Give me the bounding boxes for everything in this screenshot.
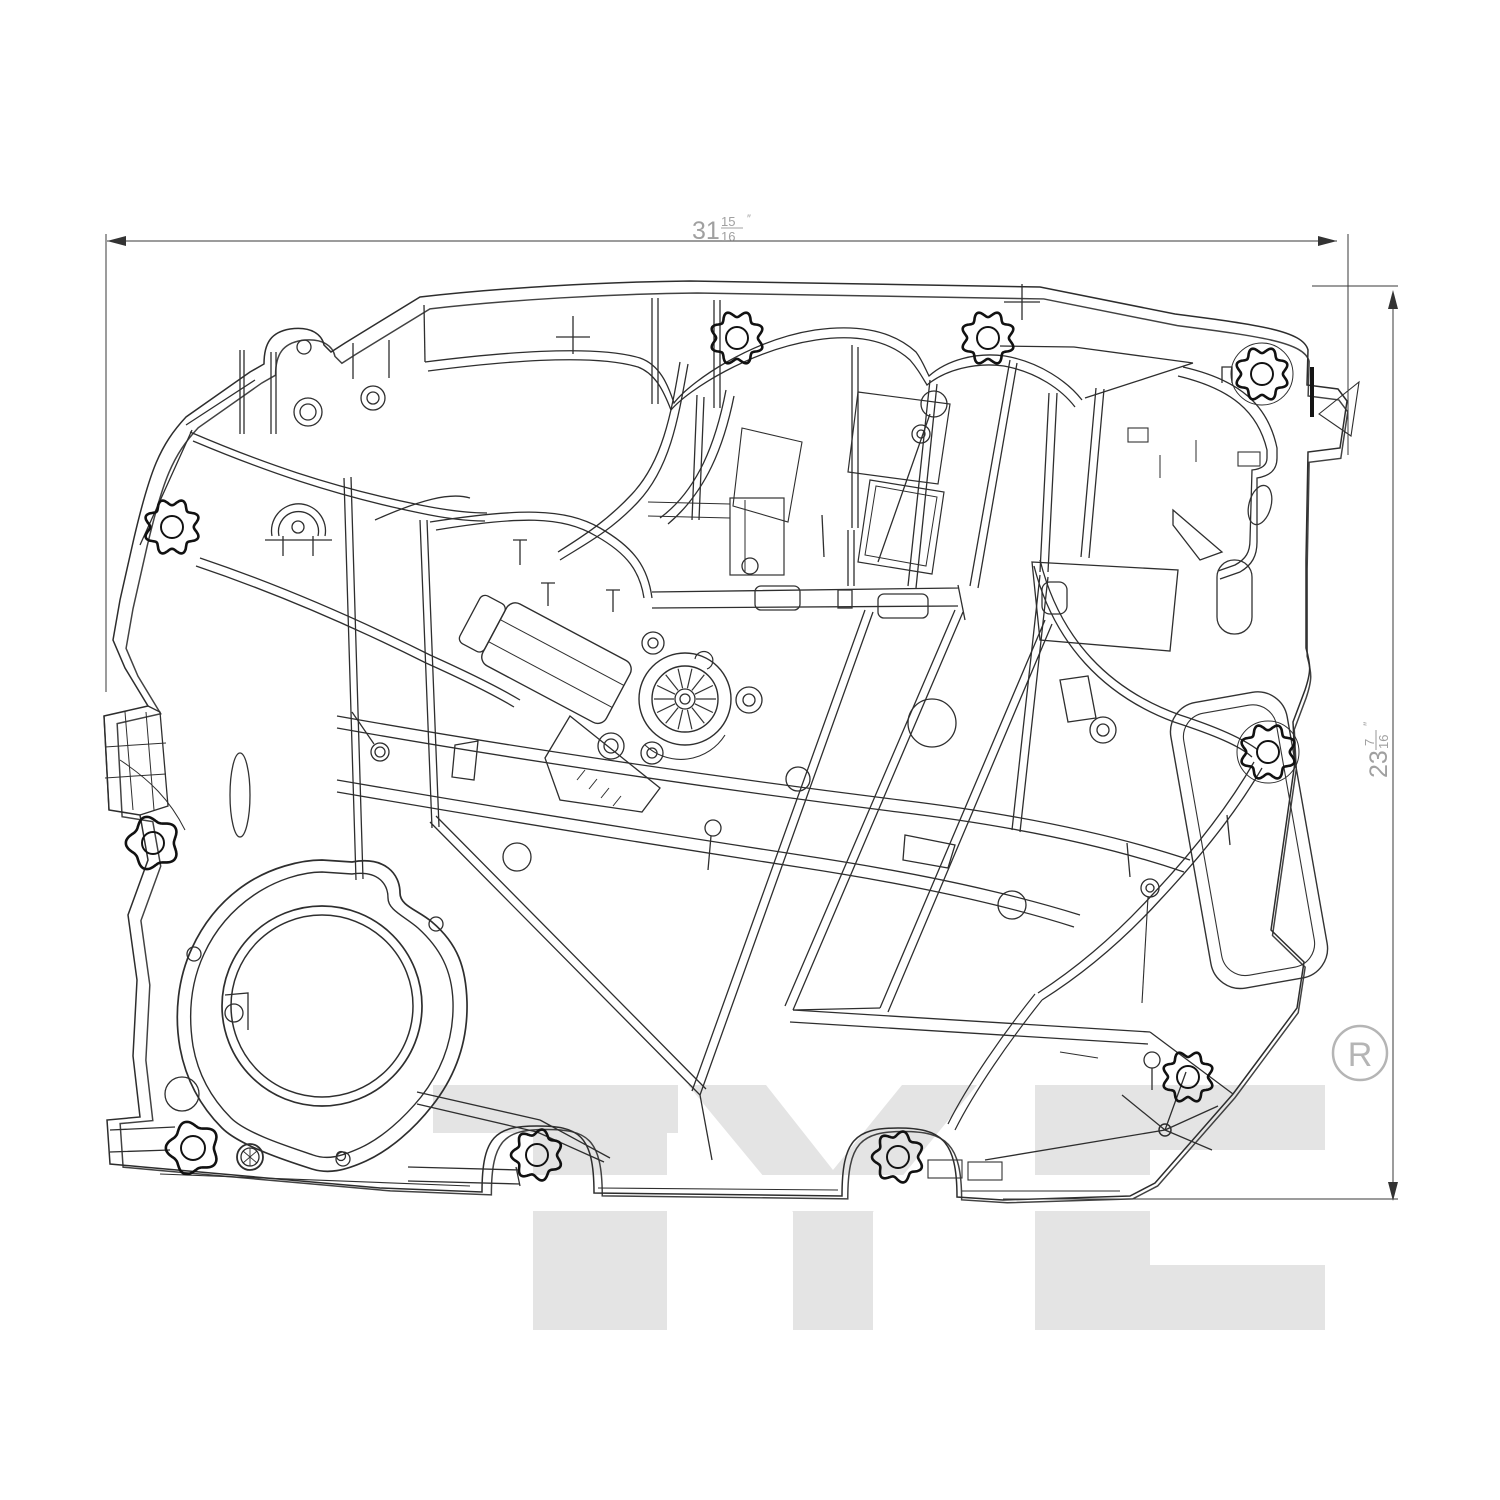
svg-text:23: 23 [1365, 750, 1393, 778]
svg-text:″: ″ [747, 213, 751, 225]
svg-text:R: R [1348, 1036, 1373, 1074]
svg-text:7: 7 [1362, 739, 1377, 746]
svg-text:16: 16 [721, 229, 735, 244]
svg-text:15: 15 [721, 214, 735, 229]
svg-text:16: 16 [1376, 735, 1391, 749]
svg-text:31: 31 [692, 217, 720, 245]
